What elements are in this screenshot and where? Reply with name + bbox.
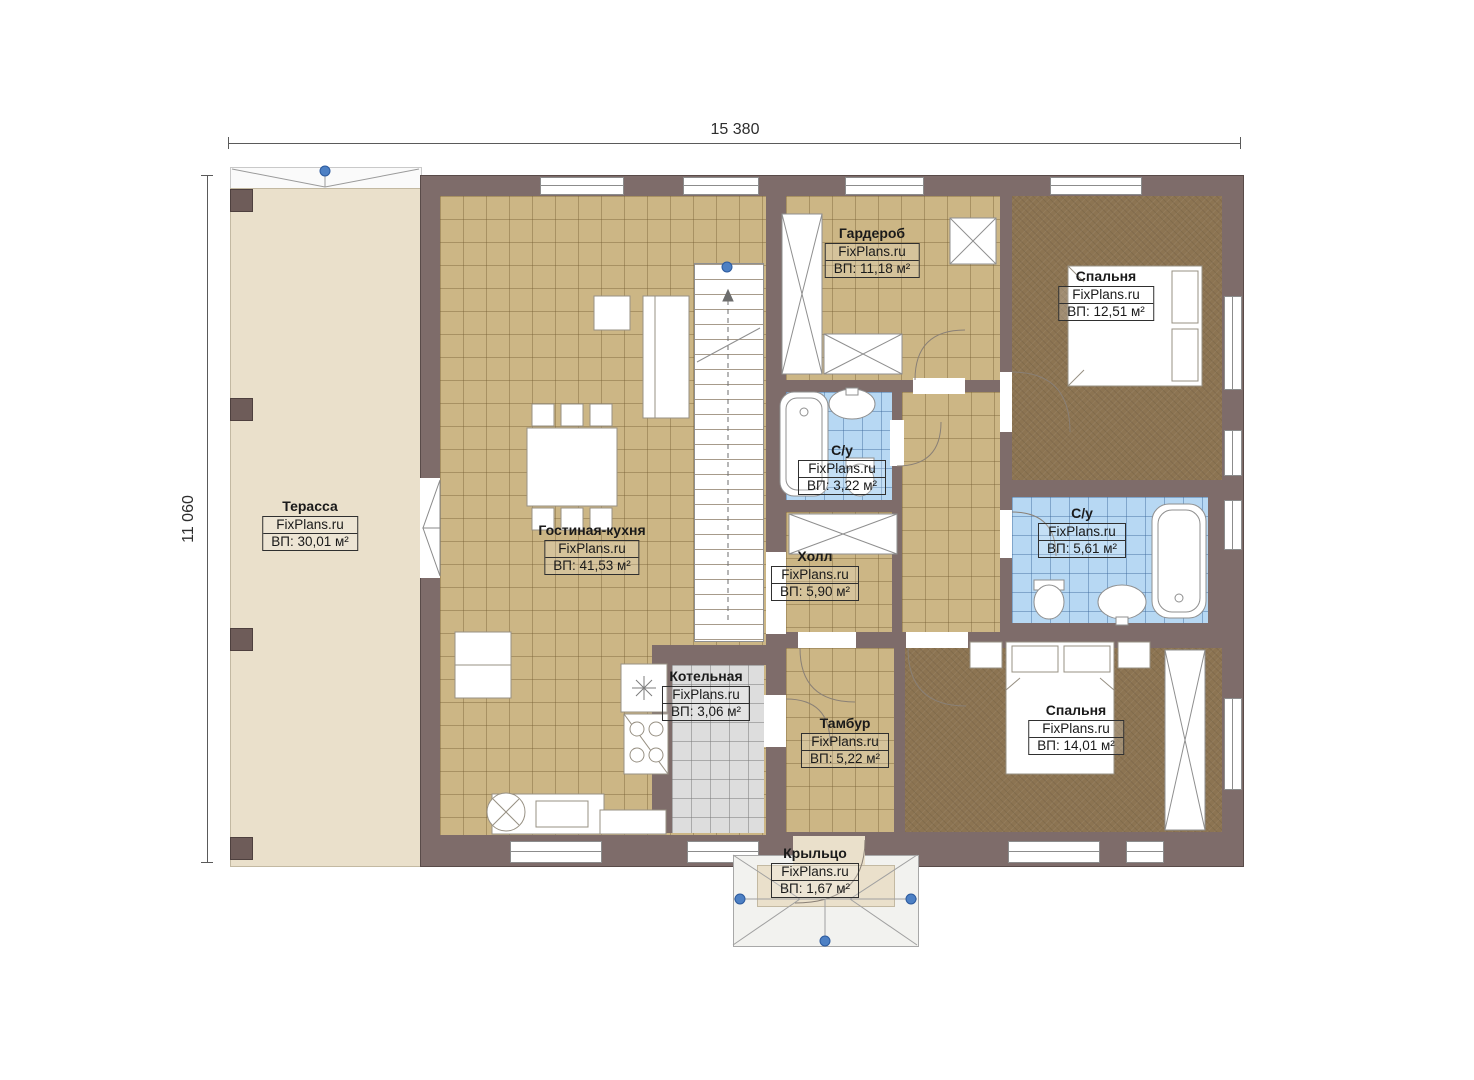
dimension-line-left — [207, 175, 208, 862]
room-area: ВП: 11,18 м² — [826, 261, 919, 277]
room-label-bathroom1: С/у FixPlans.ru ВП: 3,22 м² — [798, 442, 886, 495]
room-name: Крыльцо — [771, 845, 859, 861]
room-label-terrace: Терасса FixPlans.ru ВП: 30,01 м² — [262, 498, 358, 551]
door-opening — [913, 378, 965, 394]
room-name: С/у — [798, 442, 886, 458]
room-area: ВП: 1,67 м² — [772, 881, 858, 897]
brand-watermark: FixPlans.ru — [663, 687, 749, 704]
room-area: ВП: 41,53 м² — [545, 558, 639, 574]
window — [845, 177, 924, 195]
terrace-door-opening — [420, 478, 440, 578]
room-area: ВП: 5,22 м² — [802, 751, 888, 767]
brand-watermark: FixPlans.ru — [545, 541, 639, 558]
hall-floor-right — [902, 392, 1000, 632]
room-name: Терасса — [262, 498, 358, 514]
door-opening — [1000, 510, 1012, 558]
brand-watermark: FixPlans.ru — [772, 864, 858, 881]
window — [540, 177, 624, 195]
window — [510, 841, 602, 863]
terrace-post — [230, 189, 253, 212]
window — [1224, 698, 1242, 790]
door-opening — [798, 632, 856, 648]
room-label-bedroom2: Спальня FixPlans.ru ВП: 14,01 м² — [1028, 702, 1124, 755]
brand-watermark: FixPlans.ru — [1029, 721, 1123, 738]
room-area: ВП: 3,22 м² — [799, 478, 885, 494]
room-label-hall: Холл FixPlans.ru ВП: 5,90 м² — [771, 548, 859, 601]
room-label-living-kitchen: Гостиная-кухня FixPlans.ru ВП: 41,53 м² — [538, 522, 645, 575]
bedroom1-floor — [1012, 196, 1222, 480]
dimension-tick — [1240, 137, 1241, 149]
brand-watermark: FixPlans.ru — [1039, 524, 1125, 541]
window — [1008, 841, 1100, 863]
brand-watermark: FixPlans.ru — [799, 461, 885, 478]
room-area: ВП: 12,51 м² — [1059, 304, 1153, 320]
brand-watermark: FixPlans.ru — [826, 244, 919, 261]
room-name: Гардероб — [825, 225, 920, 241]
staircase — [694, 263, 764, 642]
window — [1224, 296, 1242, 390]
room-area: ВП: 14,01 м² — [1029, 738, 1123, 754]
terrace-post — [230, 398, 253, 421]
room-name: Тамбур — [801, 715, 889, 731]
door-opening — [1000, 372, 1012, 432]
room-label-tambour: Тамбур FixPlans.ru ВП: 5,22 м² — [801, 715, 889, 768]
wardrobe-floor — [786, 196, 1000, 380]
room-label-porch: Крыльцо FixPlans.ru ВП: 1,67 м² — [771, 845, 859, 898]
room-label-boiler-room: Котельная FixPlans.ru ВП: 3,06 м² — [662, 668, 750, 721]
room-area: ВП: 30,01 м² — [263, 534, 357, 550]
room-area: ВП: 5,61 м² — [1039, 541, 1125, 557]
room-area: ВП: 5,90 м² — [772, 584, 858, 600]
dimension-left-label: 11 060 — [180, 495, 198, 543]
room-name: Спальня — [1028, 702, 1124, 718]
room-area: ВП: 3,06 м² — [663, 704, 749, 720]
room-name: Спальня — [1058, 268, 1154, 284]
room-name: С/у — [1038, 505, 1126, 521]
room-name: Холл — [771, 548, 859, 564]
brand-watermark: FixPlans.ru — [772, 567, 858, 584]
dimension-top-label: 15 380 — [711, 121, 760, 139]
brand-watermark: FixPlans.ru — [802, 734, 888, 751]
brand-watermark: FixPlans.ru — [1059, 287, 1153, 304]
door-opening — [764, 695, 786, 747]
dimension-tick — [201, 175, 213, 176]
boiler-room-wall — [652, 645, 770, 665]
room-name: Гостиная-кухня — [538, 522, 645, 538]
window — [1224, 430, 1242, 476]
window — [1126, 841, 1164, 863]
dimension-line-top — [228, 143, 1240, 144]
window — [1050, 177, 1142, 195]
door-opening — [890, 420, 904, 466]
dimension-tick — [201, 862, 213, 863]
floor-plan-canvas: 15 380 11 060 — [0, 0, 1474, 1080]
room-label-bathroom2: С/у FixPlans.ru ВП: 5,61 м² — [1038, 505, 1126, 558]
terrace-post — [230, 628, 253, 651]
room-label-bedroom1: Спальня FixPlans.ru ВП: 12,51 м² — [1058, 268, 1154, 321]
brand-watermark: FixPlans.ru — [263, 517, 357, 534]
terrace-post — [230, 837, 253, 860]
door-opening — [906, 632, 968, 648]
dimension-tick — [228, 137, 229, 149]
window — [1224, 500, 1242, 550]
terrace-roof-band — [230, 167, 422, 190]
room-label-wardrobe: Гардероб FixPlans.ru ВП: 11,18 м² — [825, 225, 920, 278]
room-name: Котельная — [662, 668, 750, 684]
window — [683, 177, 759, 195]
